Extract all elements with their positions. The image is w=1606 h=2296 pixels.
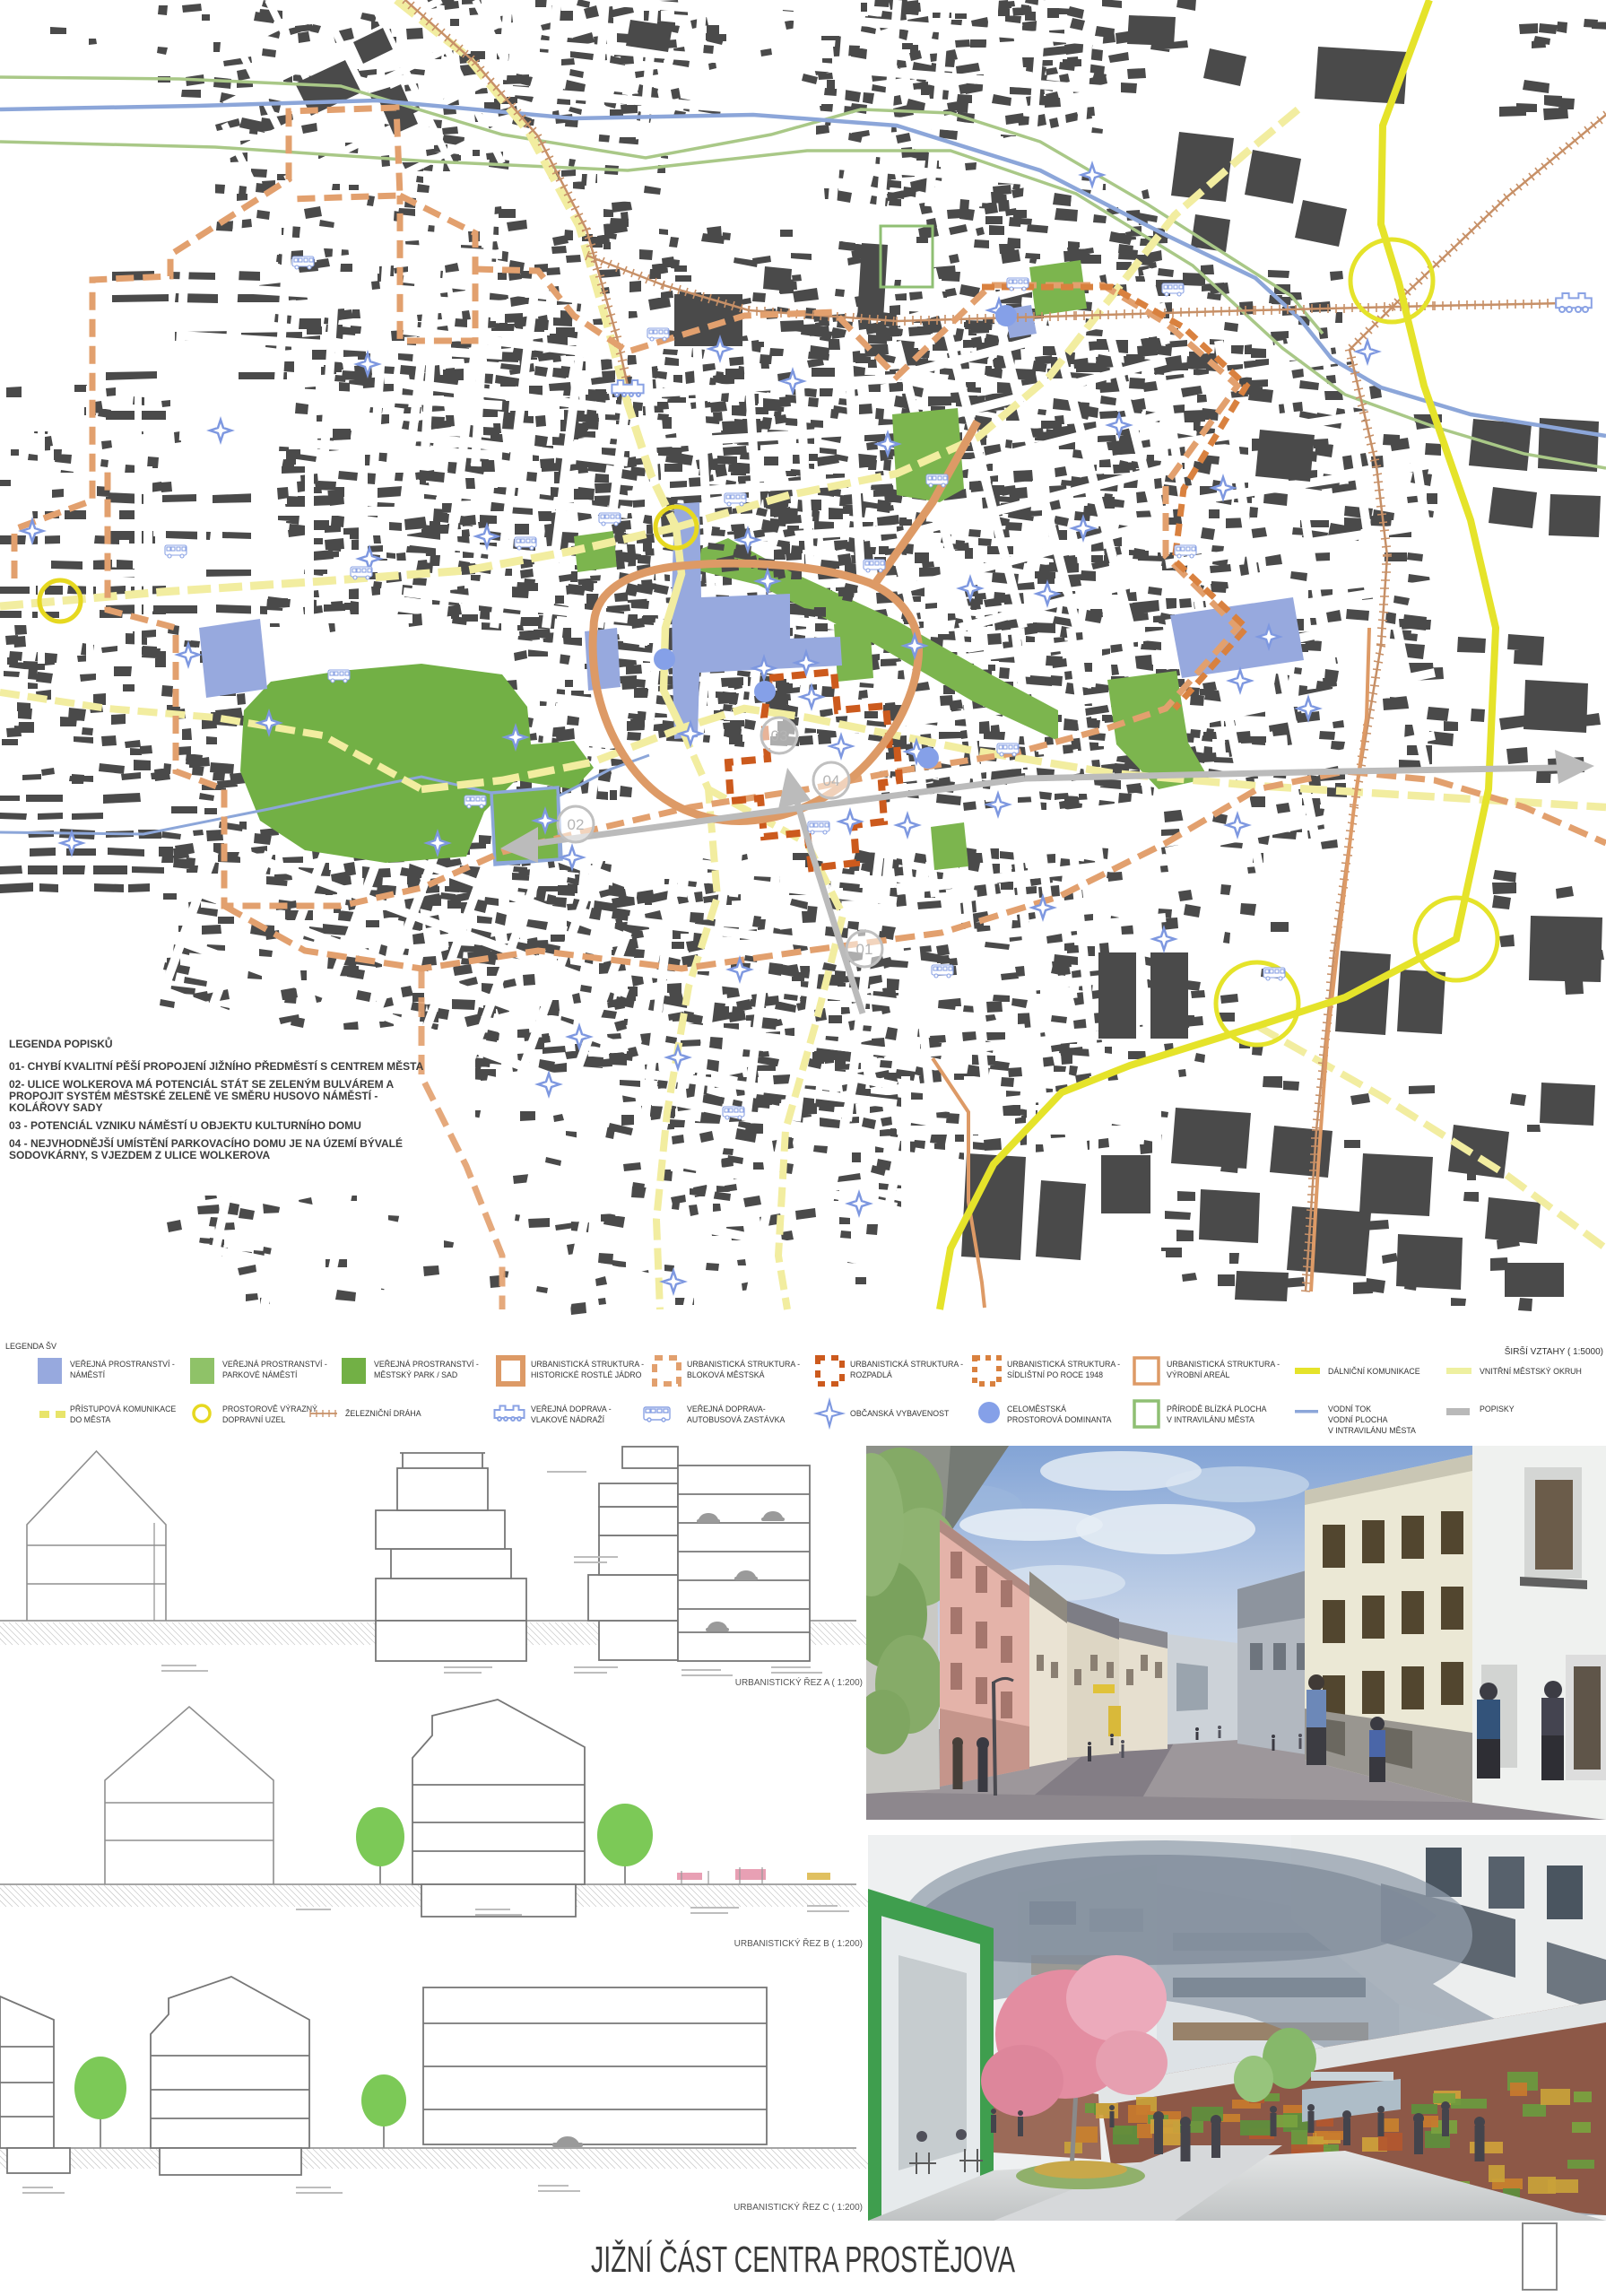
svg-text:SÍDLIŠTNÍ PO ROCE 1948: SÍDLIŠTNÍ PO ROCE 1948 [1007, 1370, 1103, 1379]
svg-text:POPISKY: POPISKY [1480, 1405, 1515, 1413]
svg-text:04 - NEJVHODNĚJŠÍ UMÍSTĚNÍ PAR: 04 - NEJVHODNĚJŠÍ UMÍSTĚNÍ PARKOVACÍHO D… [9, 1136, 403, 1150]
svg-text:PARKOVÉ NÁMĚSTÍ: PARKOVÉ NÁMĚSTÍ [222, 1370, 298, 1379]
svg-text:SODOVKÁRNY, S VJEZDEM Z ULICE: SODOVKÁRNY, S VJEZDEM Z ULICE WOLKEROVA [9, 1148, 270, 1161]
svg-text:VEŘEJNÁ DOPRAVA-: VEŘEJNÁ DOPRAVA- [687, 1405, 766, 1413]
svg-text:CELOMĚSTSKÁ: CELOMĚSTSKÁ [1007, 1405, 1066, 1413]
svg-text:VLAKOVÉ NÁDRAŽÍ: VLAKOVÉ NÁDRAŽÍ [531, 1415, 605, 1424]
svg-text:V INTRAVILÁNU MĚSTA: V INTRAVILÁNU MĚSTA [1328, 1426, 1416, 1435]
svg-text:URBANISTICKÝ ŘEZ B ( 1:200): URBANISTICKÝ ŘEZ B ( 1:200) [734, 1937, 863, 1949]
svg-text:DO MĚSTA: DO MĚSTA [70, 1415, 110, 1424]
svg-text:VODNÍ TOK: VODNÍ TOK [1328, 1405, 1371, 1413]
svg-text:VÝROBNÍ AREÁL: VÝROBNÍ AREÁL [1167, 1370, 1230, 1379]
svg-text:NÁMĚSTÍ: NÁMĚSTÍ [70, 1370, 106, 1379]
svg-text:04: 04 [823, 772, 840, 789]
svg-text:AUTOBUSOVÁ ZASTÁVKA: AUTOBUSOVÁ ZASTÁVKA [687, 1415, 785, 1424]
svg-text:HISTORICKÉ ROSTLÉ JÁDRO: HISTORICKÉ ROSTLÉ JÁDRO [531, 1370, 642, 1379]
svg-text:VEŘEJNÁ PROSTRANSTVÍ -: VEŘEJNÁ PROSTRANSTVÍ - [374, 1360, 479, 1369]
svg-text:VEŘEJNÁ PROSTRANSTVÍ -: VEŘEJNÁ PROSTRANSTVÍ - [70, 1360, 175, 1369]
svg-text:LEGENDA POPISKŮ: LEGENDA POPISKŮ [9, 1036, 113, 1050]
svg-text:DÁLNIČNÍ KOMUNIKACE: DÁLNIČNÍ KOMUNIKACE [1328, 1367, 1420, 1376]
svg-text:URBANISTICKÁ STRUKTURA -: URBANISTICKÁ STRUKTURA - [687, 1360, 800, 1369]
svg-text:LEGENDA ŠV: LEGENDA ŠV [5, 1342, 56, 1351]
svg-text:PROPOJIT SYSTÉM MĚSTSKÉ ZELENĚ: PROPOJIT SYSTÉM MĚSTSKÉ ZELENĚ VE SMĚRU … [9, 1089, 378, 1102]
svg-text:DOPRAVNÍ UZEL: DOPRAVNÍ UZEL [222, 1415, 285, 1424]
svg-text:V INTRAVILÁNU MĚSTA: V INTRAVILÁNU MĚSTA [1167, 1415, 1254, 1424]
svg-text:URBANISTICKÁ STRUKTURA -: URBANISTICKÁ STRUKTURA - [1167, 1360, 1280, 1369]
svg-text:PŘÍRODĚ BLÍZKÁ PLOCHA: PŘÍRODĚ BLÍZKÁ PLOCHA [1167, 1405, 1267, 1413]
svg-text:URBANISTICKÁ STRUKTURA -: URBANISTICKÁ STRUKTURA - [1007, 1360, 1120, 1369]
svg-text:JIŽNÍ ČÁST CENTRA PROSTĚJOVA: JIŽNÍ ČÁST CENTRA PROSTĚJOVA [591, 2239, 1015, 2280]
svg-text:03 - POTENCIÁL VZNIKU NÁMĚSTÍ: 03 - POTENCIÁL VZNIKU NÁMĚSTÍ U OBJEKTU … [9, 1118, 361, 1132]
svg-text:KOLÁŘOVY SADY: KOLÁŘOVY SADY [9, 1100, 102, 1114]
svg-text:PROSTOROVĚ VÝRAZNÝ: PROSTOROVĚ VÝRAZNÝ [222, 1405, 317, 1413]
svg-text:VNITŘNÍ MĚSTSKÝ OKRUH: VNITŘNÍ MĚSTSKÝ OKRUH [1480, 1367, 1582, 1376]
svg-text:URBANISTICKÁ STRUKTURA -: URBANISTICKÁ STRUKTURA - [850, 1360, 963, 1369]
svg-text:02: 02 [568, 816, 585, 833]
svg-text:VODNÍ PLOCHA: VODNÍ PLOCHA [1328, 1415, 1388, 1424]
svg-text:01- CHYBÍ KVALITNÍ PĚŠÍ PROPOJ: 01- CHYBÍ KVALITNÍ PĚŠÍ PROPOJENÍ JIŽNÍH… [9, 1059, 424, 1073]
svg-text:ŽELEZNIČNÍ DRÁHA: ŽELEZNIČNÍ DRÁHA [345, 1409, 421, 1418]
svg-text:URBANISTICKÝ ŘEZ C ( 1:200): URBANISTICKÝ ŘEZ C ( 1:200) [734, 2201, 863, 2213]
svg-text:PROSTOROVÁ DOMINANTA: PROSTOROVÁ DOMINANTA [1007, 1415, 1112, 1424]
svg-text:URBANISTICKÁ STRUKTURA -: URBANISTICKÁ STRUKTURA - [531, 1360, 644, 1369]
svg-text:ROZPADLÁ: ROZPADLÁ [850, 1370, 892, 1379]
svg-text:BLOKOVÁ MĚSTSKÁ: BLOKOVÁ MĚSTSKÁ [687, 1370, 765, 1379]
svg-text:03: 03 [771, 727, 788, 744]
svg-text:OBČANSKÁ VYBAVENOST: OBČANSKÁ VYBAVENOST [850, 1409, 950, 1418]
svg-text:URBANISTICKÝ ŘEZ A ( 1:200): URBANISTICKÝ ŘEZ A ( 1:200) [735, 1676, 863, 1688]
svg-text:VEŘEJNÁ PROSTRANSTVÍ -: VEŘEJNÁ PROSTRANSTVÍ - [222, 1360, 327, 1369]
svg-text:VEŘEJNÁ DOPRAVA -: VEŘEJNÁ DOPRAVA - [531, 1405, 612, 1413]
svg-text:01: 01 [856, 941, 873, 958]
svg-text:MĚSTSKÝ PARK / SAD: MĚSTSKÝ PARK / SAD [374, 1370, 457, 1379]
svg-text:02- ULICE WOLKEROVA MÁ POTENCI: 02- ULICE WOLKEROVA MÁ POTENCIÁL STÁT SE… [9, 1077, 394, 1091]
svg-text:ŠIRŠÍ VZTAHY ( 1:5000): ŠIRŠÍ VZTAHY ( 1:5000) [1505, 1345, 1603, 1357]
svg-text:PŘÍSTUPOVÁ KOMUNIKACE: PŘÍSTUPOVÁ KOMUNIKACE [70, 1405, 176, 1413]
